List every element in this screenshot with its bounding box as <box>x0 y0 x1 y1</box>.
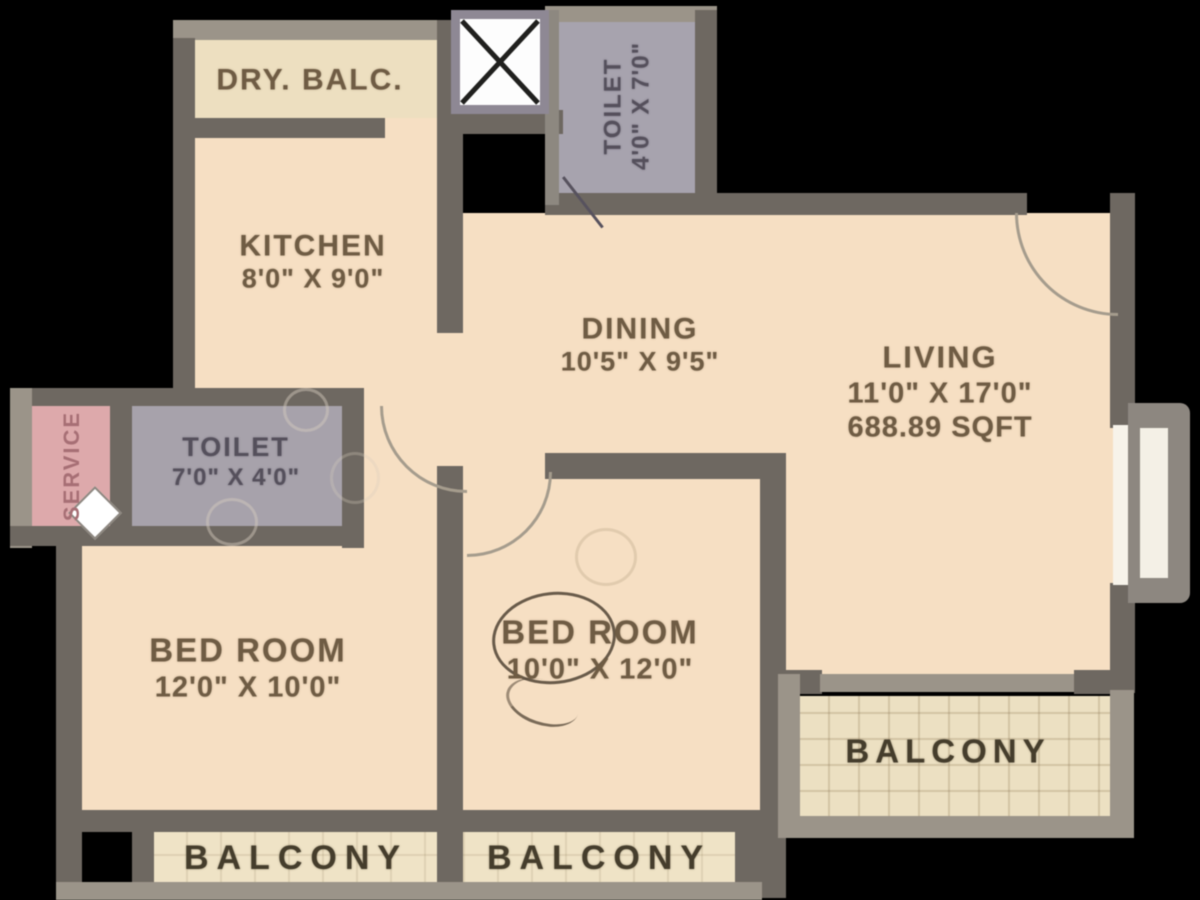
room-dims: 10'0" X 12'0" <box>501 652 699 686</box>
room-name: TOILET <box>172 432 300 464</box>
floor-plan-canvas: DRY. BALC. TOILET 4'0" X 7'0" KITCHEN 8'… <box>0 0 1200 900</box>
room-name: DRY. BALC. <box>216 62 403 97</box>
service-label: SERVICE <box>59 411 85 521</box>
balcony-right-label: BALCONY <box>845 733 1050 772</box>
room-dims: 10'5" X 9'5" <box>561 347 720 379</box>
room-name: BALCONY <box>184 838 408 878</box>
room-dims: 4'0" X 7'0" <box>628 42 656 170</box>
room-name: SERVICE <box>59 411 85 521</box>
wall <box>173 20 460 40</box>
balcony-left-label: BALCONY <box>184 838 408 878</box>
wall <box>778 816 1134 838</box>
watermark-ring <box>206 498 258 546</box>
toilet-top-label: TOILET 4'0" X 7'0" <box>600 42 657 170</box>
floor-plan: DRY. BALC. TOILET 4'0" X 7'0" KITCHEN 8'… <box>0 0 1200 900</box>
room-area: 688.89 SQFT <box>847 410 1032 444</box>
living-label: LIVING 11'0" X 17'0" 688.89 SQFT <box>847 339 1032 444</box>
wall <box>10 388 32 548</box>
watermark-ring <box>575 528 637 586</box>
room-name: BALCONY <box>845 733 1050 772</box>
wall <box>545 6 717 22</box>
room-name: KITCHEN <box>239 228 386 263</box>
room-dims: 11'0" X 17'0" <box>847 376 1032 410</box>
kitchen-label: KITCHEN 8'0" X 9'0" <box>239 228 386 295</box>
room-name: BED ROOM <box>149 631 347 670</box>
balcony-center-label: BALCONY <box>487 838 711 878</box>
room-name: LIVING <box>847 339 1032 376</box>
duct-shaft-icon <box>451 10 549 114</box>
wall <box>695 10 717 215</box>
shaft-cross-lines <box>460 19 540 105</box>
room-name: BALCONY <box>487 838 711 878</box>
wall <box>778 674 800 838</box>
bedroom-center-label: BED ROOM 10'0" X 12'0" <box>501 613 699 686</box>
wall <box>820 674 1076 692</box>
room-dims: 7'0" X 4'0" <box>172 464 300 492</box>
room-name: DINING <box>561 311 720 346</box>
dining-label: DINING 10'5" X 9'5" <box>561 311 720 378</box>
entrance-door-leaf-icon <box>1140 428 1168 578</box>
room-name: TOILET <box>600 42 628 170</box>
room-name: BED ROOM <box>501 613 699 652</box>
watermark-ring <box>283 388 329 432</box>
watermark-ring <box>330 452 380 504</box>
wall <box>545 453 763 479</box>
wall <box>173 38 195 394</box>
wall <box>56 526 82 898</box>
bedroom-left-label: BED ROOM 12'0" X 10'0" <box>149 631 347 704</box>
wall <box>56 810 762 832</box>
dry-balcony-label: DRY. BALC. <box>216 62 403 97</box>
room-dims: 12'0" X 10'0" <box>149 670 347 704</box>
toilet-left-label: TOILET 7'0" X 4'0" <box>172 432 300 492</box>
wall <box>173 118 385 138</box>
room-dims: 8'0" X 9'0" <box>239 264 386 296</box>
wall <box>56 882 762 900</box>
wall <box>545 193 1027 215</box>
